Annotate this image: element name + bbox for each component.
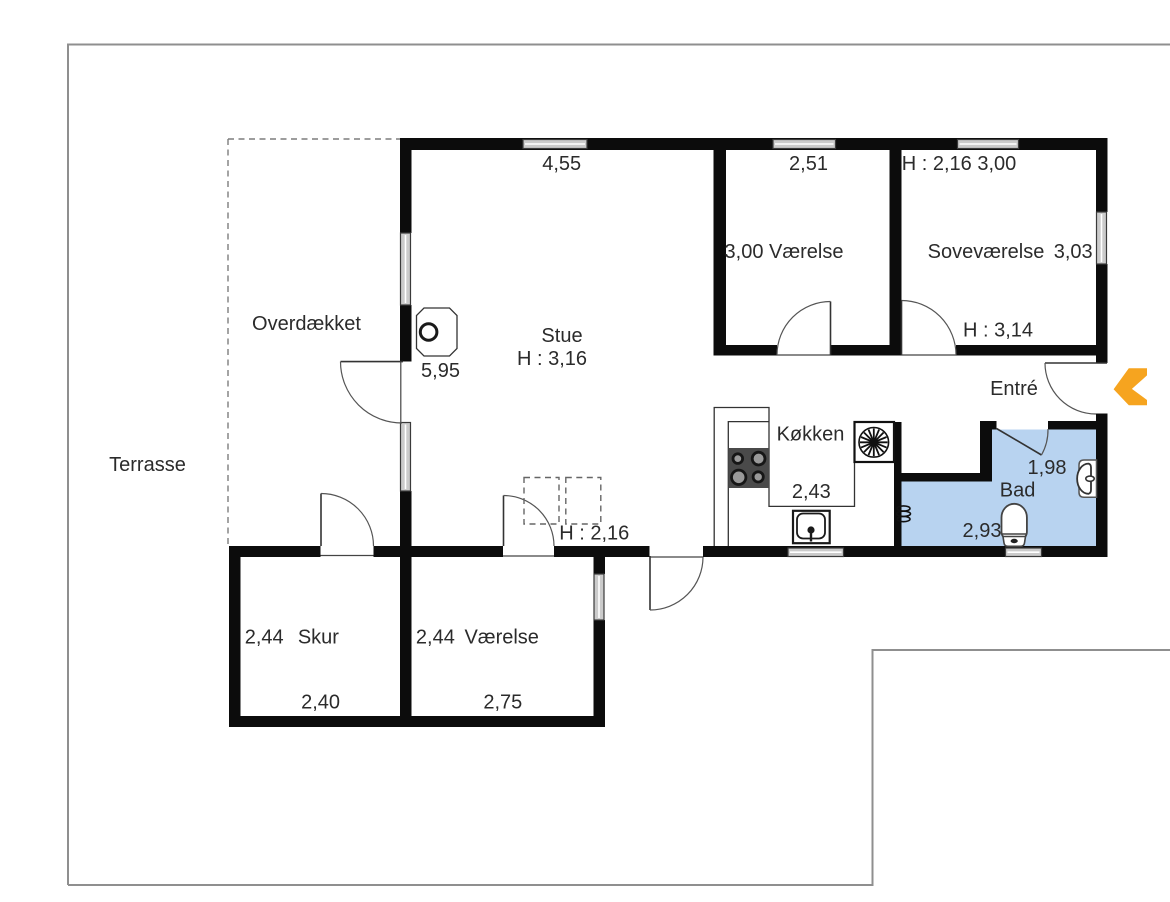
svg-text:2,43: 2,43 <box>792 481 831 503</box>
svg-text:4,55: 4,55 <box>542 153 581 175</box>
svg-text:1,98: 1,98 <box>1028 457 1067 479</box>
svg-text:Stue: Stue <box>541 325 582 347</box>
svg-text:Overdækket: Overdækket <box>252 313 361 335</box>
svg-text:Værelse: Værelse <box>464 627 538 649</box>
svg-text:Entré: Entré <box>990 378 1038 400</box>
svg-text:Bad: Bad <box>1000 480 1036 502</box>
svg-text:2,75: 2,75 <box>483 692 522 714</box>
svg-text:Køkken: Køkken <box>777 424 845 446</box>
svg-text:H : 2,16: H : 2,16 <box>559 523 629 545</box>
svg-text:H : 2,16 3,00: H : 2,16 3,00 <box>902 153 1017 175</box>
svg-text:2,40: 2,40 <box>301 692 340 714</box>
svg-text:Terrasse: Terrasse <box>109 454 186 476</box>
svg-text:Soveværelse: Soveværelse <box>928 241 1045 263</box>
svg-text:Skur: Skur <box>298 627 339 649</box>
svg-text:5,95: 5,95 <box>421 360 460 382</box>
svg-text:3,03: 3,03 <box>1054 241 1093 263</box>
svg-text:2,51: 2,51 <box>789 153 828 175</box>
svg-text:H : 3,14: H : 3,14 <box>963 320 1033 342</box>
svg-text:2,44: 2,44 <box>245 627 284 649</box>
svg-text:2,44: 2,44 <box>416 627 455 649</box>
svg-text:2,93: 2,93 <box>963 520 1002 542</box>
svg-text:H : 3,16: H : 3,16 <box>517 348 587 370</box>
svg-text:3,00 Værelse: 3,00 Værelse <box>725 241 844 263</box>
